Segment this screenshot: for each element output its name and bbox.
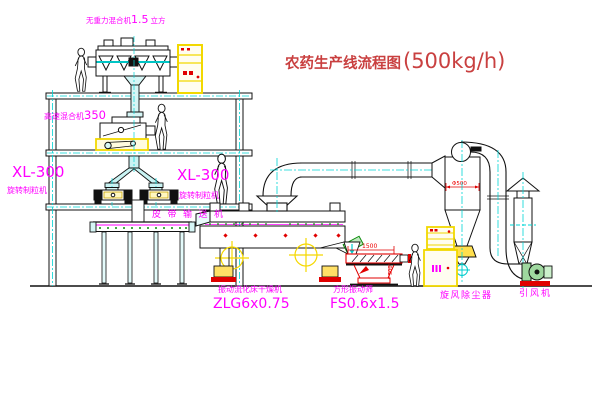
label-sieve-name: 方形振动筛 — [333, 284, 373, 294]
flow-diagram-canvas: Φ500 1500 500 — [0, 0, 600, 403]
granulator-discharge-chute — [132, 200, 144, 222]
process-flow-diagram: Φ500 1500 500 — [0, 0, 600, 403]
sieve-length-dim: 1500 — [362, 243, 377, 250]
label-granulator-left-name: 旋转制粒机 — [7, 185, 47, 195]
label-dryer-model: ZLG6x0.75 — [213, 296, 290, 312]
exhaust-duct — [257, 161, 432, 211]
label-granulator-center-model: XL-300 — [177, 166, 229, 184]
person-figure — [155, 104, 167, 149]
label-belt-conveyor: 皮带输送机 — [152, 208, 230, 220]
label-granulator-center-name: 旋转制粒机 — [179, 190, 219, 200]
person-figure — [75, 48, 87, 91]
belt-conveyor — [90, 222, 195, 284]
label-dryer-name: 振动流化床干燥机 — [218, 284, 282, 294]
label-granulator-left-model: XL-300 — [12, 163, 64, 181]
label-cyclone: 旋风除尘器 — [440, 289, 493, 301]
control-cabinet-1 — [178, 45, 202, 93]
label-sieve-model: FS0.6x1.5 — [330, 296, 400, 312]
control-cabinet-2 — [424, 227, 457, 286]
label-zero-gravity-mixer: 无重力混合机1.5立方 — [86, 13, 166, 26]
zero-gravity-mixer — [88, 38, 178, 93]
induced-draft-fan — [520, 263, 552, 286]
label-fan: 引风机 — [519, 287, 552, 299]
diagram-title: 农药生产线流程图(500kg/h) — [284, 49, 505, 73]
person-figure — [409, 244, 420, 286]
square-vibrating-sieve — [344, 242, 411, 285]
mixer-discharge-chute — [131, 85, 139, 115]
sieve-outlet-dim: 500 — [388, 265, 394, 275]
cyclone-diameter-dim: Φ500 — [452, 181, 467, 187]
rotary-granulator-left — [94, 188, 132, 205]
rotary-granulator-right — [140, 188, 178, 205]
